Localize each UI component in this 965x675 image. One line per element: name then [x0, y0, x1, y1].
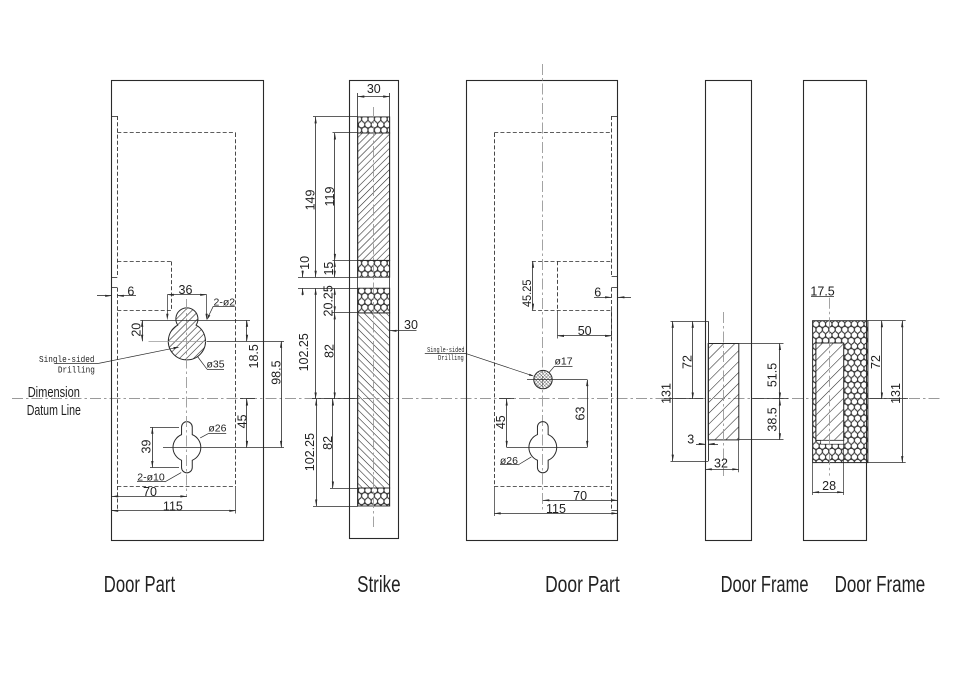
svg-text:ø26: ø26	[208, 423, 226, 435]
svg-text:Drilling: Drilling	[58, 365, 95, 376]
svg-text:20: 20	[129, 323, 143, 337]
svg-text:18.5: 18.5	[247, 344, 261, 368]
svg-text:10: 10	[298, 256, 312, 270]
svg-text:39: 39	[139, 440, 153, 454]
svg-text:Door Frame: Door Frame	[721, 571, 809, 597]
svg-text:115: 115	[163, 499, 183, 513]
svg-text:15: 15	[322, 262, 336, 276]
svg-text:102.25: 102.25	[303, 433, 317, 471]
svg-text:Dimension: Dimension	[28, 384, 80, 401]
svg-text:131: 131	[889, 383, 903, 404]
svg-text:ø17: ø17	[554, 356, 572, 368]
svg-text:6: 6	[594, 286, 601, 300]
svg-text:3: 3	[687, 432, 694, 446]
svg-text:28: 28	[822, 479, 836, 493]
svg-text:2-ø10: 2-ø10	[137, 472, 165, 484]
svg-text:102.25: 102.25	[297, 333, 311, 371]
svg-text:70: 70	[143, 485, 157, 499]
svg-text:72: 72	[869, 355, 883, 369]
svg-text:ø35: ø35	[206, 358, 224, 370]
svg-text:149: 149	[304, 190, 318, 211]
svg-text:38.5: 38.5	[766, 407, 780, 431]
svg-text:45: 45	[235, 414, 249, 428]
svg-text:63: 63	[574, 407, 588, 421]
svg-text:72: 72	[680, 355, 694, 369]
svg-text:32: 32	[714, 456, 728, 470]
svg-text:Strike: Strike	[357, 571, 401, 597]
svg-text:30: 30	[404, 318, 418, 332]
svg-text:36: 36	[179, 283, 193, 297]
svg-text:98.5: 98.5	[270, 360, 284, 384]
svg-text:45.25: 45.25	[520, 279, 534, 307]
svg-text:45: 45	[494, 415, 508, 429]
svg-text:115: 115	[546, 502, 566, 516]
svg-text:6: 6	[127, 284, 134, 298]
svg-text:119: 119	[323, 186, 337, 206]
svg-text:Datum Line: Datum Line	[27, 402, 81, 419]
svg-text:82: 82	[323, 344, 337, 358]
svg-text:20.25: 20.25	[322, 285, 336, 316]
svg-text:Door Part: Door Part	[545, 571, 620, 597]
svg-text:30: 30	[367, 82, 381, 96]
svg-text:50: 50	[578, 324, 592, 338]
svg-text:131: 131	[660, 383, 674, 404]
svg-text:51.5: 51.5	[766, 363, 780, 387]
svg-text:ø26: ø26	[500, 455, 518, 467]
svg-text:Drilling: Drilling	[438, 355, 464, 363]
svg-text:70: 70	[573, 489, 587, 503]
svg-text:Door Frame: Door Frame	[835, 571, 926, 597]
svg-text:82: 82	[321, 436, 335, 450]
svg-text:Door Part: Door Part	[104, 571, 176, 597]
